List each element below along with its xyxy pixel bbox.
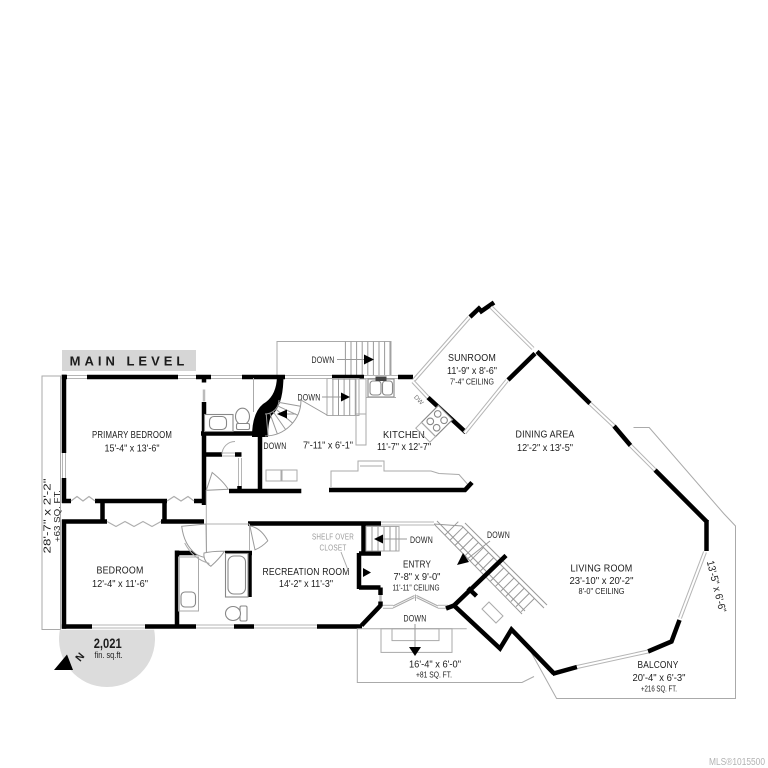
- svg-text:+81 SQ. FT.: +81 SQ. FT.: [416, 670, 452, 680]
- svg-text:DOWN: DOWN: [264, 441, 287, 452]
- svg-text:15'-4" x 13'-6": 15'-4" x 13'-6": [105, 443, 160, 455]
- svg-text:SHELF OVER: SHELF OVER: [312, 532, 354, 542]
- svg-text:RECREATION ROOM: RECREATION ROOM: [263, 566, 350, 578]
- svg-text:BALCONY: BALCONY: [638, 659, 679, 671]
- svg-text:PRIMARY BEDROOM: PRIMARY BEDROOM: [92, 429, 172, 441]
- svg-text:LIVING ROOM: LIVING ROOM: [571, 563, 633, 575]
- svg-text:+63 SQ. FT.: +63 SQ. FT.: [52, 490, 62, 542]
- svg-text:MLS®1015500: MLS®1015500: [709, 757, 765, 768]
- svg-text:DOWN: DOWN: [410, 535, 433, 546]
- svg-text:2,021: 2,021: [94, 636, 122, 651]
- svg-text:7'-11" x 6'-1": 7'-11" x 6'-1": [303, 440, 353, 452]
- svg-text:CLOSET: CLOSET: [320, 543, 347, 553]
- svg-text:fin. sq.ft.: fin. sq.ft.: [95, 650, 123, 661]
- svg-text:20'-4" x 6'-3": 20'-4" x 6'-3": [633, 672, 686, 684]
- svg-text:11'-9" x 8'-6": 11'-9" x 8'-6": [447, 365, 497, 377]
- svg-text:BEDROOM: BEDROOM: [97, 565, 144, 577]
- svg-text:DOWN: DOWN: [487, 530, 510, 541]
- svg-text:14'-2" x 11'-3": 14'-2" x 11'-3": [279, 578, 333, 590]
- svg-text:DOWN: DOWN: [404, 614, 427, 625]
- svg-text:8'-0" CEILING: 8'-0" CEILING: [579, 586, 625, 596]
- svg-text:12'-4" x 11'-6": 12'-4" x 11'-6": [92, 578, 148, 590]
- svg-text:11'-7" x 12'-7": 11'-7" x 12'-7": [377, 441, 431, 453]
- svg-text:11'-11" CEILING: 11'-11" CEILING: [393, 583, 440, 593]
- svg-text:12'-2" x 13'-5": 12'-2" x 13'-5": [517, 442, 573, 454]
- svg-text:DOWN: DOWN: [312, 355, 335, 366]
- svg-text:7'-4" CEILING: 7'-4" CEILING: [450, 377, 494, 387]
- svg-text:+216 SQ. FT.: +216 SQ. FT.: [641, 684, 677, 694]
- svg-text:ENTRY: ENTRY: [403, 559, 431, 571]
- svg-text:MAIN LEVEL: MAIN LEVEL: [70, 354, 189, 369]
- svg-text:SUNROOM: SUNROOM: [448, 352, 496, 364]
- svg-text:DINING AREA: DINING AREA: [516, 429, 575, 441]
- svg-text:7'-8" x 9'-0": 7'-8" x 9'-0": [394, 571, 441, 583]
